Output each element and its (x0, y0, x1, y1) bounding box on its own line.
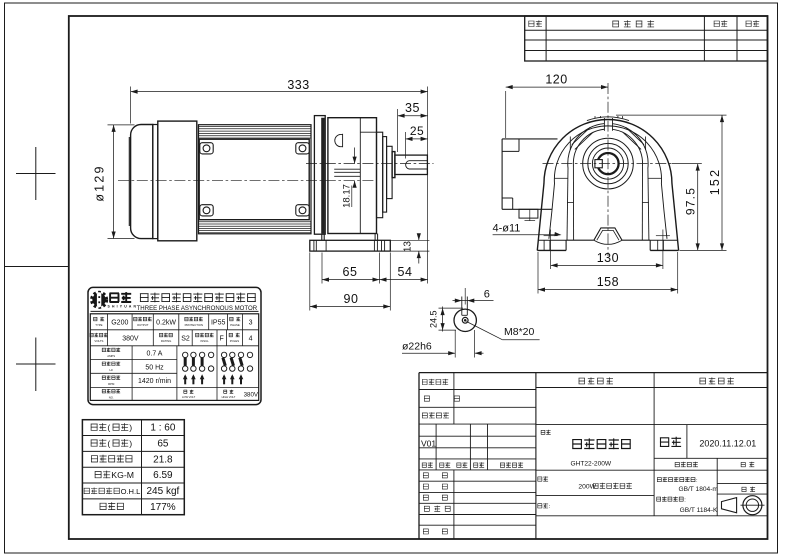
svg-text:KG-M: KG-M (111, 470, 134, 480)
svg-text:152: 152 (708, 168, 722, 195)
svg-text:HIGH VOLT: HIGH VOLT (222, 395, 236, 399)
svg-text:35: 35 (405, 101, 420, 115)
svg-text:90: 90 (344, 292, 359, 306)
svg-text:V01: V01 (421, 438, 436, 448)
svg-text:RATING: RATING (161, 339, 171, 343)
svg-text:Hz: Hz (109, 368, 113, 372)
svg-text:F: F (220, 336, 224, 343)
svg-text:120: 120 (545, 72, 567, 86)
svg-text:SHIYUAN: SHIYUAN (108, 305, 139, 309)
svg-text:6.59: 6.59 (153, 470, 173, 481)
svg-text:LOW VOLT: LOW VOLT (182, 395, 196, 399)
svg-text:158: 158 (597, 275, 619, 289)
svg-text:380V: 380V (122, 336, 139, 343)
svg-text:(: ( (107, 423, 110, 433)
svg-text:65: 65 (157, 439, 169, 450)
svg-text:PROTECTION: PROTECTION (185, 323, 203, 327)
svg-text:0.2kW: 0.2kW (156, 320, 176, 327)
svg-text:65: 65 (343, 265, 358, 279)
svg-text:97.5: 97.5 (684, 187, 698, 215)
svg-text:177%: 177% (150, 502, 176, 513)
svg-text:TYPE: TYPE (95, 323, 102, 327)
svg-text:6: 6 (484, 288, 490, 300)
svg-text:13: 13 (402, 241, 413, 253)
svg-text:333: 333 (287, 78, 309, 92)
svg-text:AMPS: AMPS (107, 354, 115, 358)
svg-text:ø129: ø129 (92, 164, 106, 201)
svg-text:50 Hz: 50 Hz (145, 364, 164, 371)
svg-text:(: ( (107, 439, 110, 449)
svg-text:): ) (129, 423, 132, 433)
svg-text:POLES: POLES (230, 339, 239, 343)
svg-text:VOLTS: VOLTS (94, 339, 103, 343)
svg-text:4-ø11: 4-ø11 (493, 223, 521, 235)
svg-text:THREE PHASE ASYNCHRONOUS MOTOR: THREE PHASE ASYNCHRONOUS MOTOR (137, 305, 258, 312)
svg-text:200W: 200W (578, 484, 596, 491)
svg-text:ø22h6: ø22h6 (402, 341, 432, 353)
svg-text:G200: G200 (111, 320, 128, 327)
svg-text:24.5: 24.5 (429, 310, 439, 328)
svg-text:0.7 A: 0.7 A (147, 351, 163, 358)
svg-text:1420 r/min: 1420 r/min (138, 378, 171, 385)
svg-text:130: 130 (597, 251, 619, 265)
svg-text:21.8: 21.8 (153, 454, 173, 465)
svg-text:4: 4 (249, 336, 253, 343)
svg-text:GHT22-200W: GHT22-200W (570, 460, 611, 467)
svg-text:GB/T 1804-m: GB/T 1804-m (678, 486, 718, 493)
svg-text:245 kgf: 245 kgf (146, 486, 179, 497)
svg-text:2020.11.12.01: 2020.11.12.01 (699, 439, 756, 449)
svg-text:NO.: NO. (109, 395, 114, 399)
svg-text:25: 25 (410, 124, 424, 138)
svg-text:54: 54 (398, 265, 413, 279)
svg-text:18.17: 18.17 (341, 184, 352, 208)
svg-text:O.H.L: O.H.L (121, 487, 141, 496)
svg-text:S2: S2 (181, 336, 190, 343)
svg-text:GB/T 1184-K: GB/T 1184-K (680, 507, 718, 514)
svg-text:PHASE: PHASE (230, 323, 240, 327)
svg-text:): ) (129, 439, 132, 449)
svg-text:1 : 60: 1 : 60 (150, 423, 175, 434)
svg-text:RPM: RPM (108, 382, 115, 386)
svg-text:INSUL: INSUL (200, 339, 209, 343)
svg-text:380V: 380V (244, 392, 259, 399)
svg-text:IP55: IP55 (211, 320, 226, 327)
svg-text:3: 3 (249, 320, 253, 327)
svg-text:M8*20: M8*20 (504, 326, 535, 338)
svg-text:OUTPUT: OUTPUT (137, 323, 149, 327)
